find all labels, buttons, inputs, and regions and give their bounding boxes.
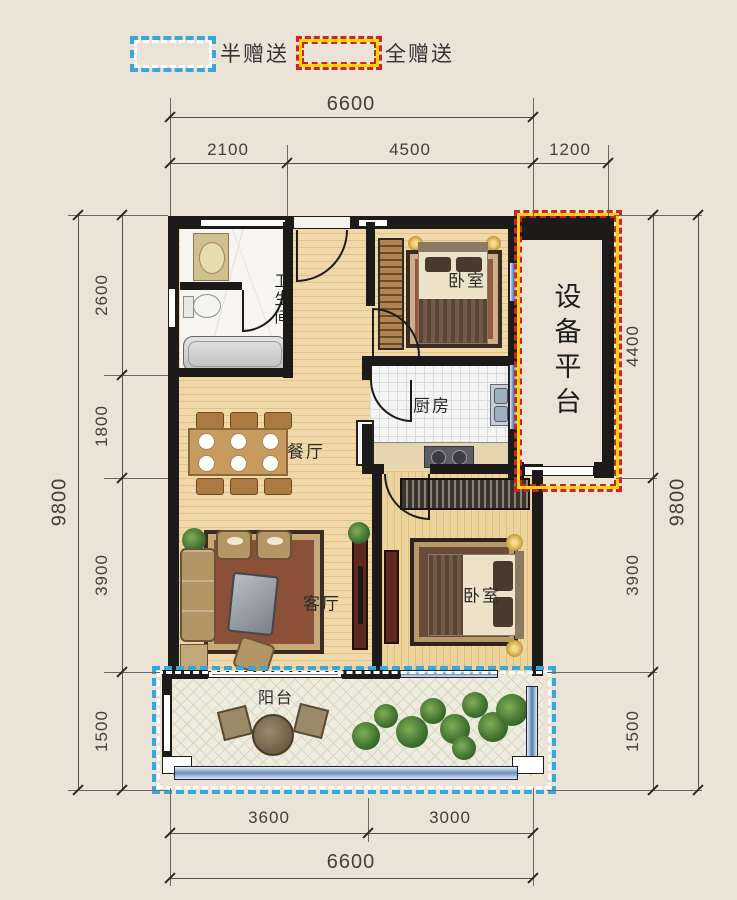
equipment-platform-label: 设备平台 [547, 282, 586, 422]
wall-bathroom-partition [180, 282, 242, 290]
dining-chair [196, 478, 224, 495]
bedroom-top-label: 卧室 [448, 267, 486, 292]
half-gift-box-inner [157, 671, 551, 789]
burner [452, 450, 467, 465]
headboard [419, 243, 487, 252]
dim-top-seg2: 4500 [389, 140, 431, 160]
wall-bedroom-bottom-right [532, 470, 543, 676]
wall-divider-living-bedroom [372, 470, 382, 674]
wall-left [168, 216, 179, 678]
window-bathroom-top [200, 219, 286, 227]
extension-line [614, 215, 702, 216]
dimension-line-left-segments [122, 215, 123, 790]
dining-table [188, 428, 288, 476]
dim-right-total: 9800 [667, 478, 690, 527]
extension-line [608, 145, 609, 216]
dim-bottom-seg2: 3000 [429, 808, 471, 828]
armchair [216, 530, 252, 560]
bathroom-sink-basin [199, 242, 225, 274]
headboard [515, 551, 524, 639]
plate [198, 433, 215, 450]
bed-top [418, 242, 488, 344]
armchair-cushion [227, 537, 243, 545]
dimension-line-top-segments [170, 163, 608, 164]
dim-left-seg2: 1800 [92, 405, 112, 447]
burner [431, 450, 446, 465]
wall-kitchen-left-upper [362, 362, 372, 380]
tv-cabinet [352, 538, 368, 650]
dimension-line-right-total [698, 215, 699, 790]
kitchen-label: 厨房 [413, 392, 451, 417]
legend-half-gift-swatch-inner [134, 40, 212, 68]
dining-chair [230, 412, 258, 429]
blanket [429, 555, 463, 635]
bedside-lamp [506, 640, 523, 657]
living-label: 客厅 [303, 590, 341, 615]
plate [262, 433, 279, 450]
plate [230, 433, 247, 450]
wall-bedroom-top-left [366, 222, 375, 306]
bedroom-bottom-label: 卧室 [463, 582, 501, 607]
dim-left-seg3: 3900 [92, 554, 112, 596]
extension-line [104, 375, 168, 376]
dim-left-seg4: 1500 [92, 710, 112, 752]
plant-tv [348, 522, 370, 544]
coffee-table [227, 572, 279, 636]
bathtub [183, 336, 287, 372]
dimension-line-left-total [78, 215, 79, 790]
wall-bathroom-bottom [168, 368, 293, 377]
wall-kitchen-top [362, 356, 514, 366]
dim-top-seg1: 2100 [207, 140, 249, 160]
extension-line [104, 478, 168, 479]
dimension-line-right-segments [653, 215, 654, 790]
bathtub-inner [188, 341, 282, 367]
toilet-bowl [193, 294, 221, 318]
legend-half-gift-label: 半赠送 [220, 38, 289, 68]
dining-chair [230, 478, 258, 495]
bathroom-label: 卫生间 [271, 273, 292, 327]
floor-plan-canvas: 半赠送 全赠送 [0, 0, 737, 900]
dim-right-seg3: 1500 [623, 710, 643, 752]
dimension-line-bottom-total [170, 878, 533, 879]
extension-line [547, 790, 702, 791]
tv-screen [358, 566, 363, 624]
window-bathroom-left [168, 288, 176, 328]
armchair-cushion [267, 537, 283, 545]
extension-line [170, 788, 171, 886]
dim-bottom-total: 6600 [327, 851, 376, 874]
dining-chair [264, 478, 292, 495]
dim-top-seg3: 1200 [549, 140, 591, 160]
extension-line [547, 672, 657, 673]
dim-top-total: 6600 [327, 93, 376, 116]
dim-bottom-seg1: 3600 [248, 808, 290, 828]
dim-right-seg1: 4400 [623, 325, 643, 367]
bedside-lamp [486, 236, 501, 251]
legend-half-gift-swatch [130, 36, 216, 72]
legend-full-gift-label: 全赠送 [385, 38, 454, 68]
dimension-line-bottom-segments [170, 833, 533, 834]
dresser [384, 550, 399, 644]
sofa [180, 548, 216, 642]
extension-line [533, 788, 534, 886]
dim-left-total: 9800 [49, 478, 72, 527]
extension-line [104, 672, 160, 673]
plate [198, 455, 215, 472]
armchair [256, 530, 292, 560]
dimension-line-top-total [170, 117, 533, 118]
extension-line [368, 798, 369, 842]
sink-basin [494, 388, 508, 404]
extension-line [287, 145, 288, 216]
dining-label: 餐厅 [287, 438, 325, 463]
legend-full-gift-swatch [296, 36, 382, 70]
bathroom-sink [193, 233, 229, 281]
balcony-label: 阳台 [258, 684, 294, 708]
plate [230, 455, 247, 472]
dim-left-seg1: 2600 [92, 274, 112, 316]
half-gift-box-balcony [152, 666, 556, 794]
sink-basin [494, 406, 508, 422]
blanket [419, 299, 487, 343]
entry-opening [294, 217, 350, 228]
plate [262, 455, 279, 472]
bedside-lamp [506, 534, 523, 551]
legend-full-gift-swatch-inner [302, 42, 376, 64]
dim-right-seg2: 3900 [623, 554, 643, 596]
dining-chair [196, 412, 224, 429]
dining-chair [264, 412, 292, 429]
